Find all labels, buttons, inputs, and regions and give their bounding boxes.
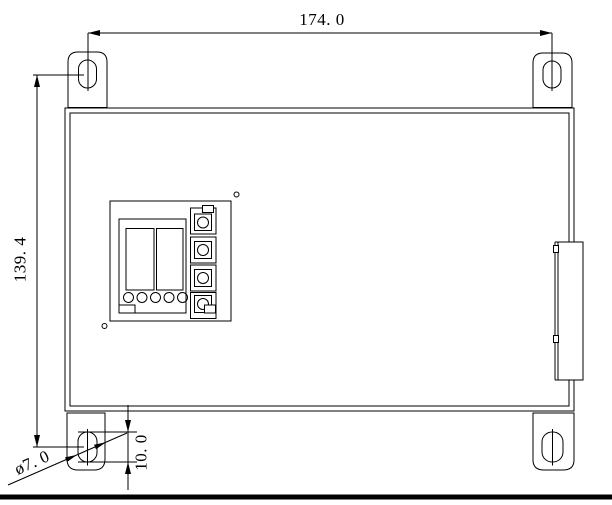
side-tab-clip-top [554, 246, 559, 253]
panel-button [164, 293, 174, 303]
display-frame [119, 219, 186, 313]
arrowhead-top [125, 420, 131, 432]
control-panel [102, 192, 239, 329]
side-tab-clip-bottom [554, 336, 559, 343]
dimension-width [88, 30, 552, 91]
arrowhead-bottom [34, 435, 40, 447]
sheet-border-line [0, 495, 612, 500]
enclosure-outer-edge [65, 108, 574, 411]
arrowhead-left [88, 30, 100, 36]
dimension-height [33, 75, 84, 447]
display-window-left [126, 229, 154, 291]
mounting-ear-bottom-left [67, 413, 105, 470]
connector-port [198, 217, 209, 228]
connector-port [198, 273, 209, 284]
terminal-block [191, 206, 217, 319]
mounting-ear-bottom-right [533, 413, 574, 470]
technical-drawing-canvas: 174. 0 139. 4 10. 0 ø7. 0 [0, 0, 612, 505]
panel-button [137, 293, 147, 303]
panel-button [151, 293, 161, 303]
enclosure-outline [65, 108, 574, 411]
arrowhead-top [34, 75, 40, 87]
drawing-svg [0, 0, 612, 505]
side-tab [554, 242, 585, 381]
arrowhead-bottom [125, 462, 131, 474]
connector-latch [203, 206, 214, 213]
dimension-label-height: 139. 4 [12, 228, 29, 292]
panel-screw-bottom [102, 324, 107, 329]
connector-port [198, 245, 209, 256]
arrowhead-right [540, 30, 552, 36]
panel-button [124, 293, 134, 303]
panel-label-tab [119, 305, 135, 313]
dimension-label-width: 174. 0 [290, 11, 354, 28]
enclosure-inner-edge [70, 113, 569, 406]
connector-latch [205, 305, 216, 313]
dimension-label-slot-length: 10. 0 [133, 421, 150, 485]
display-window-right [157, 229, 184, 291]
panel-screw-top [234, 192, 239, 197]
